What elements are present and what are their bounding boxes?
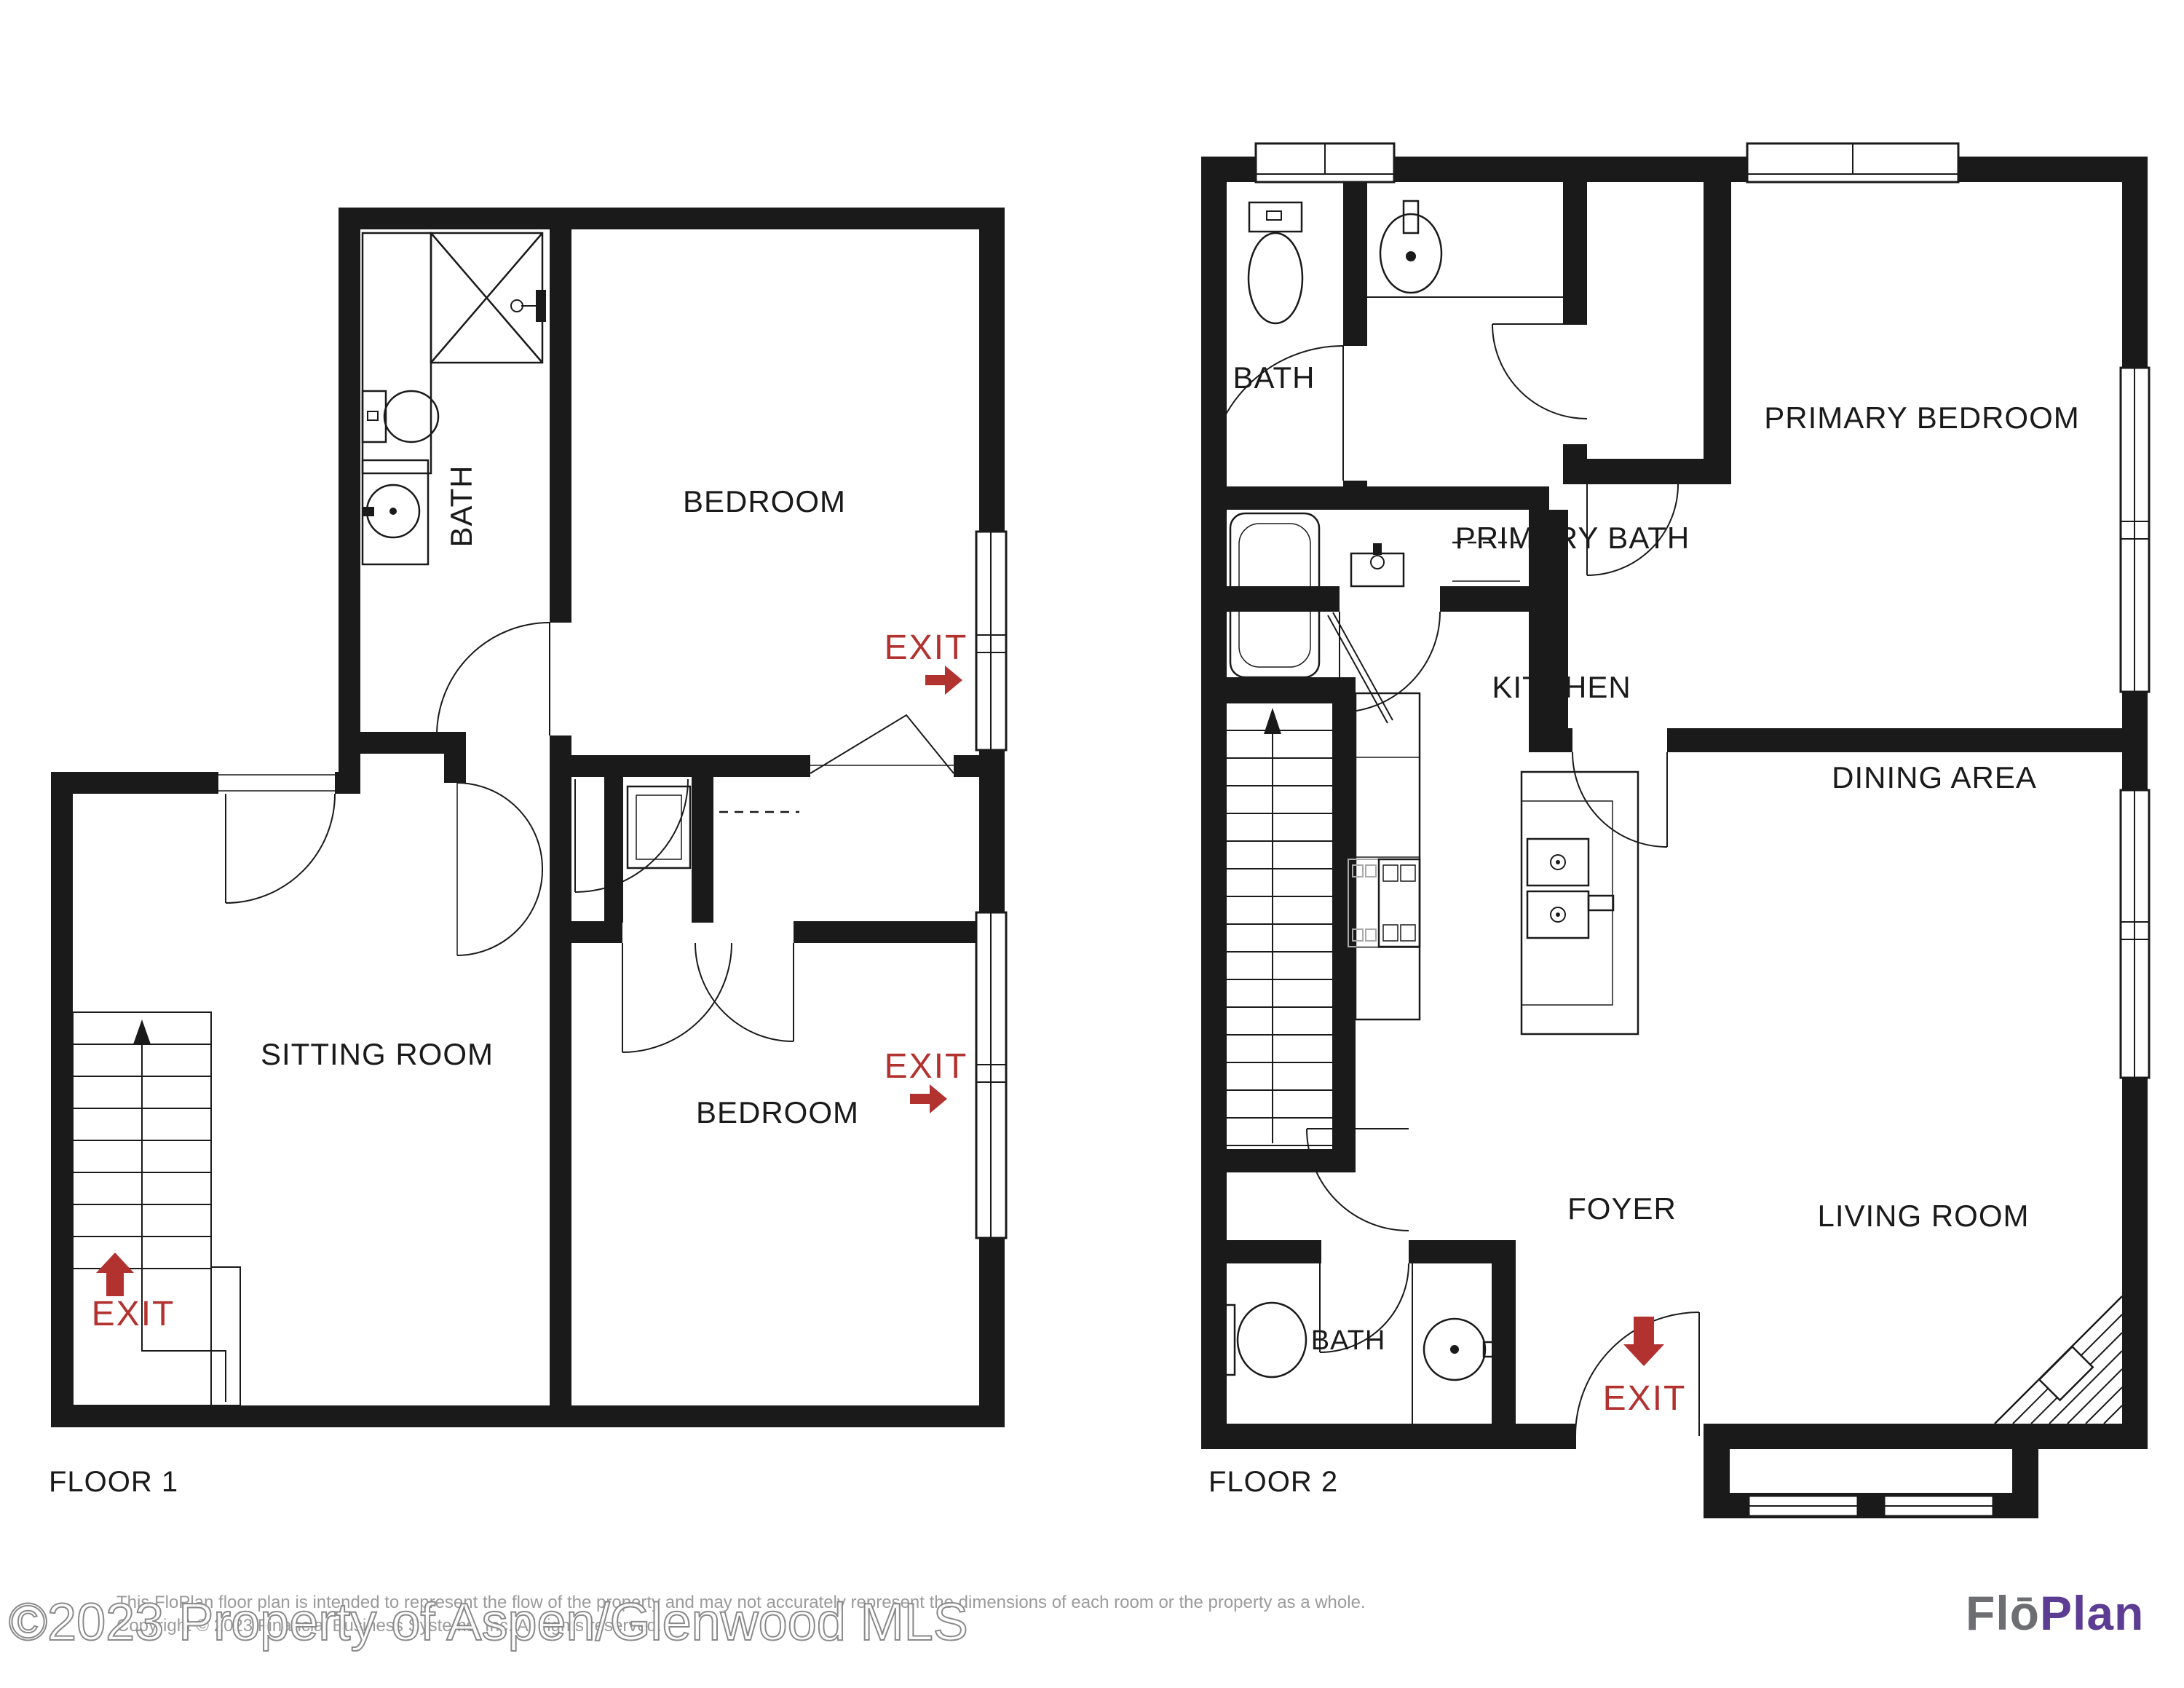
stair-direction-arrow-icon	[133, 1019, 151, 1044]
vanity-icon	[1351, 543, 1404, 586]
sink-icon	[1380, 201, 1441, 293]
floor2-exit: EXIT	[1603, 1317, 1687, 1418]
kitchen-label: KITCHEN	[1492, 670, 1631, 704]
doorway-sitting-room	[218, 775, 335, 791]
dining-area-label: DINING AREA	[1832, 760, 2037, 794]
closet-doors	[622, 943, 794, 1052]
stove-icon	[1348, 859, 1420, 947]
window-right-dining	[2121, 790, 2149, 1078]
stair-run-line	[142, 1033, 226, 1402]
bedroom-door	[575, 779, 688, 892]
fireplace-icon	[1995, 1296, 2122, 1424]
toilet-icon	[363, 391, 438, 442]
kitchen-island	[1522, 772, 1638, 1034]
primary-bath-label: PRIMARY BATH	[1455, 521, 1690, 555]
floor1-title: FLOOR 1	[49, 1466, 178, 1498]
floor1-stairs	[73, 1012, 240, 1405]
bedroom-upper-label: BEDROOM	[683, 484, 846, 518]
floor2-hall-door	[1307, 1129, 1409, 1231]
floor2-bedroom-door	[1572, 752, 1667, 847]
exit-lower-label: EXIT	[885, 1047, 968, 1086]
toilet-icon	[1249, 202, 1302, 323]
exit-stairs-label: EXIT	[92, 1295, 175, 1333]
exit-down-arrow-icon	[1623, 1317, 1664, 1366]
bath-door	[437, 623, 550, 735]
floor2-bath-upper	[1208, 202, 1343, 481]
sitting-room-door	[226, 794, 335, 903]
bath-lower-label: BATH	[1311, 1325, 1386, 1356]
floor2-kitchen	[1348, 693, 1638, 1034]
floorplan-image: BATH BEDROOM SITTING ROOM BEDROOM FLOOR …	[0, 0, 2184, 1688]
sink-icon	[363, 460, 428, 564]
floor2-plan: BATH PRIMARY BATH PRIMARY BEDROOM KITCHE…	[1201, 143, 2149, 1518]
floplan-logo: FlōPlan	[1966, 1586, 2144, 1640]
stair-direction-arrow-icon	[1264, 708, 1281, 734]
closet-door	[1492, 324, 1587, 419]
window-top-bedroom	[1747, 143, 1958, 182]
floor1-plan: BATH BEDROOM SITTING ROOM BEDROOM FLOOR …	[49, 208, 1006, 1498]
sitting-room-label: SITTING ROOM	[261, 1037, 494, 1071]
exit-foyer-label: EXIT	[1603, 1379, 1687, 1418]
floor1-exits: EXIT EXIT EXIT	[92, 628, 968, 1333]
mls-watermark: ©2023 Property of Aspen/Glenwood MLS	[9, 1593, 968, 1652]
floor1-walls	[51, 208, 1005, 1427]
exit-up-arrow-icon	[96, 1253, 134, 1296]
bedroom-lower-label: BEDROOM	[696, 1095, 859, 1129]
shower-icon	[431, 233, 546, 363]
bath-upper-label: BATH	[1233, 360, 1315, 395]
floor2-windows	[1256, 143, 2149, 1516]
kitchen-counter	[1356, 693, 1420, 1019]
logo-plan: Plan	[2040, 1586, 2144, 1640]
bath-label: BATH	[444, 465, 478, 548]
window-top-bath	[1256, 143, 1394, 182]
logo-flo: Flō	[1966, 1586, 2040, 1640]
floor2-stairs	[1227, 703, 1332, 1145]
floorplan-svg: BATH BEDROOM SITTING ROOM BEDROOM FLOOR …	[0, 0, 2184, 1688]
floor1-labels: BATH BEDROOM SITTING ROOM BEDROOM FLOOR …	[49, 465, 859, 1498]
floor2-title: FLOOR 2	[1208, 1466, 1338, 1498]
exit-upper-label: EXIT	[885, 628, 968, 667]
hall-double-doors	[457, 783, 542, 955]
window-right-bedroom	[2121, 368, 2149, 692]
footer: This FloPlan floor plan is intended to r…	[9, 1586, 2144, 1652]
open-passage-marker	[810, 715, 954, 773]
foyer-label: FOYER	[1567, 1191, 1677, 1226]
sink-icon	[1412, 1263, 1504, 1424]
living-room-label: LIVING ROOM	[1817, 1199, 2029, 1233]
window-bedroom-lower	[976, 912, 1006, 1238]
primary-bedroom-label: PRIMARY BEDROOM	[1764, 401, 2080, 435]
exit-right-arrow-icon	[910, 1084, 947, 1113]
exit-right-arrow-icon	[925, 666, 962, 695]
window-bedroom-upper	[976, 532, 1006, 750]
